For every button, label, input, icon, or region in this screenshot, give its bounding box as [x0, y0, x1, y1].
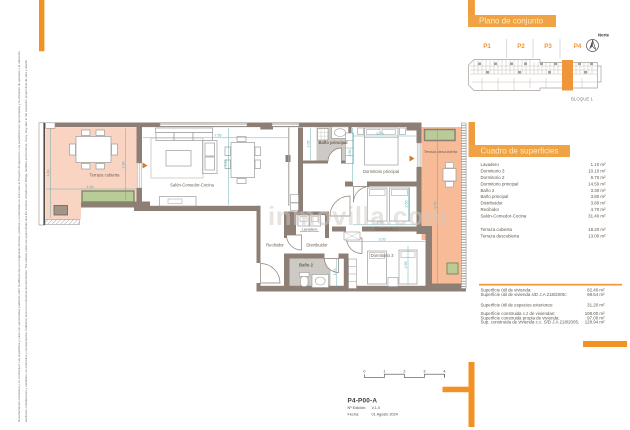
svg-text:Terraza cubierta: Terraza cubierta	[89, 173, 120, 178]
svg-text:Documentación orientativa y no: Documentación orientativa y no contractu…	[17, 51, 21, 422]
svg-text:0: 0	[363, 369, 365, 373]
svg-text:Plano de conjunto: Plano de conjunto	[479, 17, 544, 26]
svg-text:10.10 m²: 10.10 m²	[588, 169, 606, 174]
svg-text:Terraza descubierta: Terraza descubierta	[481, 234, 520, 239]
svg-text:3: 3	[423, 369, 425, 373]
svg-text:Salón-Comedor-Cocina: Salón-Comedor-Cocina	[170, 183, 214, 188]
svg-text:P4-P00-A: P4-P00-A	[348, 398, 378, 405]
svg-text:3.80 m²: 3.80 m²	[591, 194, 606, 199]
svg-text:2.05: 2.05	[307, 141, 311, 148]
svg-text:Recibidor: Recibidor	[266, 243, 284, 248]
svg-text:3.05: 3.05	[379, 238, 386, 242]
svg-text:Norte: Norte	[598, 33, 610, 38]
svg-text:3.90: 3.90	[121, 162, 125, 169]
svg-text:128.94 m²: 128.94 m²	[585, 320, 605, 325]
svg-text:Lavadero: Lavadero	[481, 162, 500, 167]
svg-text:Cuadro de superficies: Cuadro de superficies	[481, 147, 559, 156]
svg-text:Superficie útil de espacios ex: Superficie útil de espacios exteriores:	[481, 303, 554, 308]
svg-text:Fecha:: Fecha:	[348, 413, 360, 417]
svg-text:V.1.0: V.1.0	[372, 406, 381, 410]
svg-text:sanitarios, instalaciones y mo: sanitarios, instalaciones y mobiliario, …	[24, 60, 28, 422]
svg-text:Baño 2: Baño 2	[481, 188, 495, 193]
svg-text:Salón-Comedor-Cocina: Salón-Comedor-Cocina	[481, 213, 527, 218]
svg-text:1.45: 1.45	[333, 269, 337, 276]
svg-text:P4: P4	[574, 43, 582, 50]
svg-text:2.60: 2.60	[348, 150, 352, 157]
svg-text:4.70 m²: 4.70 m²	[591, 207, 606, 212]
svg-text:9.70 m²: 9.70 m²	[591, 175, 606, 180]
svg-text:98.64 m²: 98.64 m²	[587, 292, 605, 297]
svg-text:BLOQUE 1: BLOQUE 1	[571, 97, 594, 102]
svg-text:13.00 m²: 13.00 m²	[588, 234, 606, 239]
svg-text:2: 2	[403, 369, 405, 373]
svg-text:Nº Edición:: Nº Edición:	[348, 406, 367, 410]
svg-text:18.20 m²: 18.20 m²	[588, 227, 606, 232]
svg-text:2.55: 2.55	[404, 262, 408, 269]
svg-text:P2: P2	[517, 43, 525, 50]
svg-text:P1: P1	[483, 43, 491, 50]
svg-text:31.40 m²: 31.40 m²	[588, 213, 606, 218]
svg-text:01 Agosto 2024: 01 Agosto 2024	[372, 413, 398, 417]
svg-text:Dormitorio 3: Dormitorio 3	[371, 253, 394, 258]
svg-text:7.95: 7.95	[215, 134, 222, 138]
svg-text:3.30 m²: 3.30 m²	[591, 188, 606, 193]
svg-text:Dormitorio 2: Dormitorio 2	[481, 175, 505, 180]
svg-text:inmovilla.com: inmovilla.com	[268, 201, 448, 231]
svg-text:14.50 m²: 14.50 m²	[588, 181, 606, 186]
svg-text:5.20: 5.20	[377, 132, 384, 136]
svg-text:1.10 m²: 1.10 m²	[591, 162, 606, 167]
svg-text:Recibidor: Recibidor	[481, 207, 500, 212]
svg-text:Baño principal: Baño principal	[318, 140, 347, 145]
svg-text:3.45: 3.45	[224, 160, 228, 167]
svg-text:Distribuidor: Distribuidor	[306, 243, 328, 248]
svg-text:1: 1	[383, 369, 385, 373]
svg-text:31.20 m²: 31.20 m²	[587, 303, 605, 308]
svg-text:Dormitorio 3: Dormitorio 3	[481, 169, 505, 174]
svg-text:Distribuidor: Distribuidor	[481, 201, 504, 206]
svg-text:Superficie útil de vivienda s/: Superficie útil de vivienda s/D J.A 218/…	[481, 292, 568, 297]
svg-text:Sup. construida de vivienda c.: Sup. construida de vivienda c.c. S/D J.A…	[481, 320, 580, 325]
svg-text:3.80 m²: 3.80 m²	[591, 201, 606, 206]
svg-text:4.45: 4.45	[87, 185, 94, 189]
svg-text:Dormitorio principal: Dormitorio principal	[363, 169, 399, 174]
svg-text:Terraza descubierta: Terraza descubierta	[424, 150, 458, 154]
svg-text:P3: P3	[544, 43, 552, 50]
svg-text:Baño principal: Baño principal	[481, 194, 509, 199]
svg-text:4: 4	[443, 369, 445, 373]
svg-text:Terraza cubierta: Terraza cubierta	[481, 227, 513, 232]
svg-text:4.60: 4.60	[46, 170, 50, 177]
svg-text:Dormitorio principal: Dormitorio principal	[481, 181, 519, 186]
svg-text:Baño 2: Baño 2	[299, 263, 314, 268]
